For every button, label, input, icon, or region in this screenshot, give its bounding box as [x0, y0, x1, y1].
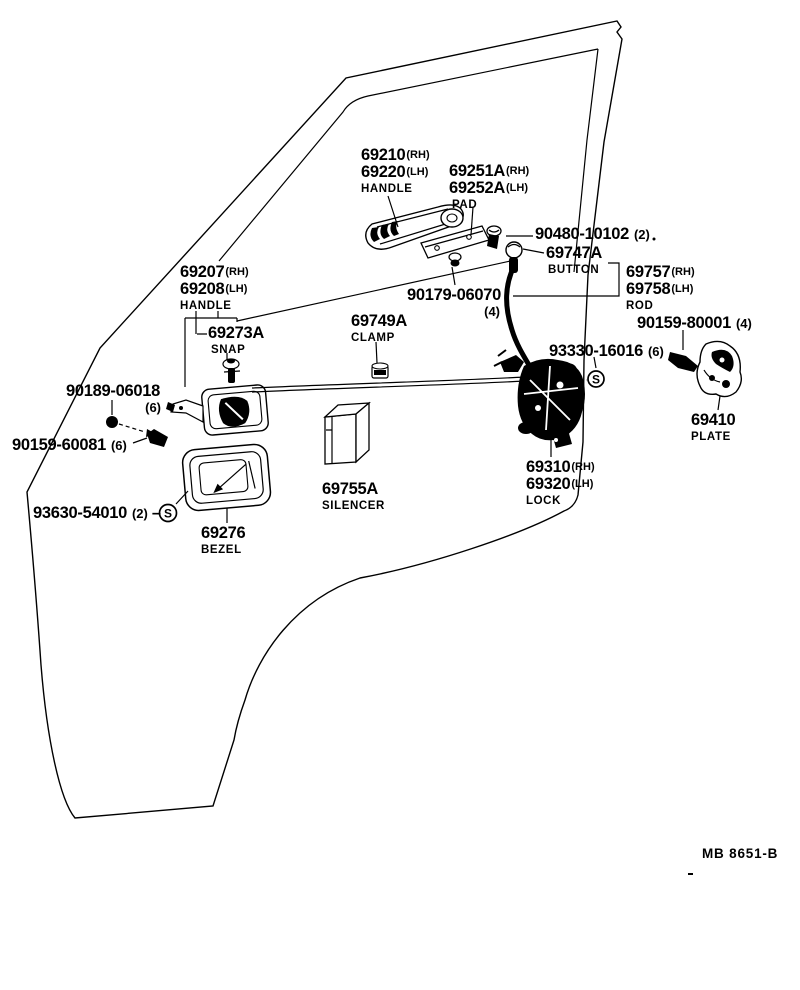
label-clip-90179[interactable]: 90179-06070 (4) [407, 287, 500, 319]
part-qty: (4) [407, 305, 500, 319]
label-lock[interactable]: 69310(RH) 69320(LH) LOCK [526, 459, 595, 507]
bezel-opening [199, 459, 249, 495]
handle-lever-arm [171, 400, 203, 422]
side-suffix: (LH) [406, 164, 428, 178]
part-number: 69210 [361, 147, 405, 164]
leader-line [376, 342, 377, 363]
s-letter: S [164, 507, 172, 521]
part-number: 69749A [351, 313, 407, 330]
pad-hole [467, 235, 472, 240]
s-marker-lock[interactable]: S [588, 371, 604, 387]
label-outer-handle[interactable]: 69210(RH) 69220(LH) HANDLE [361, 147, 430, 195]
handle-link-rod-part[interactable] [252, 377, 525, 392]
dashed-leader [119, 424, 145, 432]
label-button[interactable]: 69747A BUTTON [546, 245, 602, 276]
side-suffix: (RH) [406, 147, 429, 161]
label-screw-93330[interactable]: 93330-16016(6) [549, 343, 664, 360]
print-specks [653, 238, 694, 876]
label-clamp[interactable]: 69749A CLAMP [351, 313, 407, 344]
side-suffix: (RH) [225, 264, 248, 278]
part-qty: (6) [648, 343, 664, 358]
leader-line [452, 267, 455, 285]
side-suffix: (LH) [571, 476, 593, 490]
part-qty: (6) [66, 401, 161, 415]
clamp-part[interactable] [372, 363, 388, 378]
part-caption: CLAMP [351, 333, 407, 345]
handle-screw-dot-part[interactable] [106, 416, 118, 428]
part-number: 90189-06018 [66, 383, 160, 400]
part-number: 90159-60081 [12, 437, 106, 454]
side-suffix: (LH) [671, 281, 693, 295]
dash-to-symbol: – [152, 505, 161, 522]
snap-stem [228, 368, 235, 383]
s-marker-bezel[interactable]: S [160, 505, 177, 522]
plate-hole [720, 358, 725, 363]
handle-pivot-hole [447, 214, 457, 222]
label-screw-90189[interactable]: 90189-06018 (6) [66, 383, 161, 415]
side-suffix: (RH) [571, 459, 594, 473]
plate-part[interactable] [697, 341, 741, 396]
part-number: 90159-80001 [637, 315, 731, 332]
figure-code: MB 8651-B [702, 847, 778, 861]
part-number: 69755A [322, 481, 378, 498]
lock-hole [554, 438, 558, 442]
part-number: 69276 [201, 525, 245, 542]
part-number: 93630-54010 [33, 505, 127, 522]
part-number: 69757 [626, 264, 670, 281]
part-number: 69251A [449, 163, 505, 180]
screw-90480-part[interactable] [487, 226, 501, 249]
part-number: 69320 [526, 476, 570, 493]
side-suffix: (RH) [506, 163, 529, 177]
part-qty: (2) [634, 226, 650, 241]
part-number: 90480-10102 [535, 226, 629, 243]
part-caption: BEZEL [201, 545, 245, 557]
snap-cap [227, 359, 235, 364]
lock-rod-fork [500, 355, 524, 372]
lock-lug [557, 363, 577, 377]
part-number: 69208 [180, 281, 224, 298]
label-fastener-90480[interactable]: 90480-10102(2) [535, 226, 650, 243]
clamp-band [374, 370, 386, 375]
part-qty: (4) [736, 315, 752, 330]
part-number: 69273A [208, 325, 264, 342]
part-number: 90179-06070 [407, 287, 501, 304]
part-caption: PAD [452, 200, 529, 212]
part-caption: HANDLE [180, 301, 249, 313]
lock-lever [518, 422, 534, 434]
label-plate[interactable]: 69410 PLATE [691, 412, 735, 443]
snap-part[interactable] [223, 359, 240, 384]
part-caption: BUTTON [548, 265, 602, 277]
label-screw-90159-80001[interactable]: 90159-80001(4) [637, 315, 752, 332]
lock-hole [535, 405, 541, 411]
label-silencer[interactable]: 69755A SILENCER [322, 481, 385, 512]
clip-body [451, 260, 460, 267]
label-pad[interactable]: 69251A(RH) 69252A(LH) PAD [449, 163, 529, 211]
leader-line [133, 438, 147, 443]
silencer-part[interactable] [325, 403, 369, 464]
parts-diagram-page: S S [0, 0, 800, 990]
lever-pin [179, 406, 183, 410]
part-number: 93330-16016 [549, 343, 643, 360]
side-suffix: (LH) [225, 281, 247, 295]
plate-hole [722, 380, 730, 388]
part-number: 69207 [180, 264, 224, 281]
s-letter: S [592, 373, 600, 387]
part-caption: ROD [626, 301, 695, 313]
part-number: 69410 [691, 412, 735, 429]
leader-line [718, 396, 720, 410]
part-number: 69252A [449, 180, 505, 197]
plate-outline [697, 341, 741, 396]
part-caption: SNAP [211, 345, 264, 357]
part-number: 69758 [626, 281, 670, 298]
label-bezel[interactable]: 69276 BEZEL [201, 525, 245, 556]
snap-flange [224, 371, 240, 372]
side-suffix: (LH) [506, 180, 528, 194]
part-caption: HANDLE [361, 184, 430, 196]
door-lock-part[interactable] [494, 350, 585, 448]
bezel-part[interactable] [182, 443, 272, 511]
part-caption: LOCK [526, 496, 595, 508]
screw-shank [487, 234, 499, 249]
part-qty: (6) [111, 437, 127, 452]
label-snap[interactable]: 69273A SNAP [208, 325, 264, 356]
silencer-side [356, 403, 369, 462]
part-number: 69220 [361, 164, 405, 181]
part-qty: (2) [132, 505, 148, 520]
print-speck [653, 238, 656, 241]
plate-screw-body [668, 352, 698, 372]
silencer-front [325, 414, 356, 464]
part-number: 69747A [546, 245, 602, 262]
lock-hole [557, 382, 564, 389]
label-screw-93630[interactable]: 93630-54010(2)– [33, 505, 161, 522]
pad-hole [435, 246, 440, 251]
label-screw-90159-60081[interactable]: 90159-60081(6) [12, 437, 127, 454]
clamp-top [372, 363, 388, 369]
side-suffix: (RH) [671, 264, 694, 278]
part-caption: PLATE [691, 432, 735, 444]
print-speck [688, 873, 693, 875]
label-rod[interactable]: 69757(RH) 69758(LH) ROD [626, 264, 695, 312]
leader-line [523, 249, 544, 253]
label-inner-handle[interactable]: 69207(RH) 69208(LH) HANDLE [180, 264, 249, 312]
part-caption: SILENCER [322, 501, 385, 513]
pad-clip-part[interactable] [449, 253, 461, 267]
part-number: 69310 [526, 459, 570, 476]
plate-screw-part[interactable] [668, 352, 698, 372]
